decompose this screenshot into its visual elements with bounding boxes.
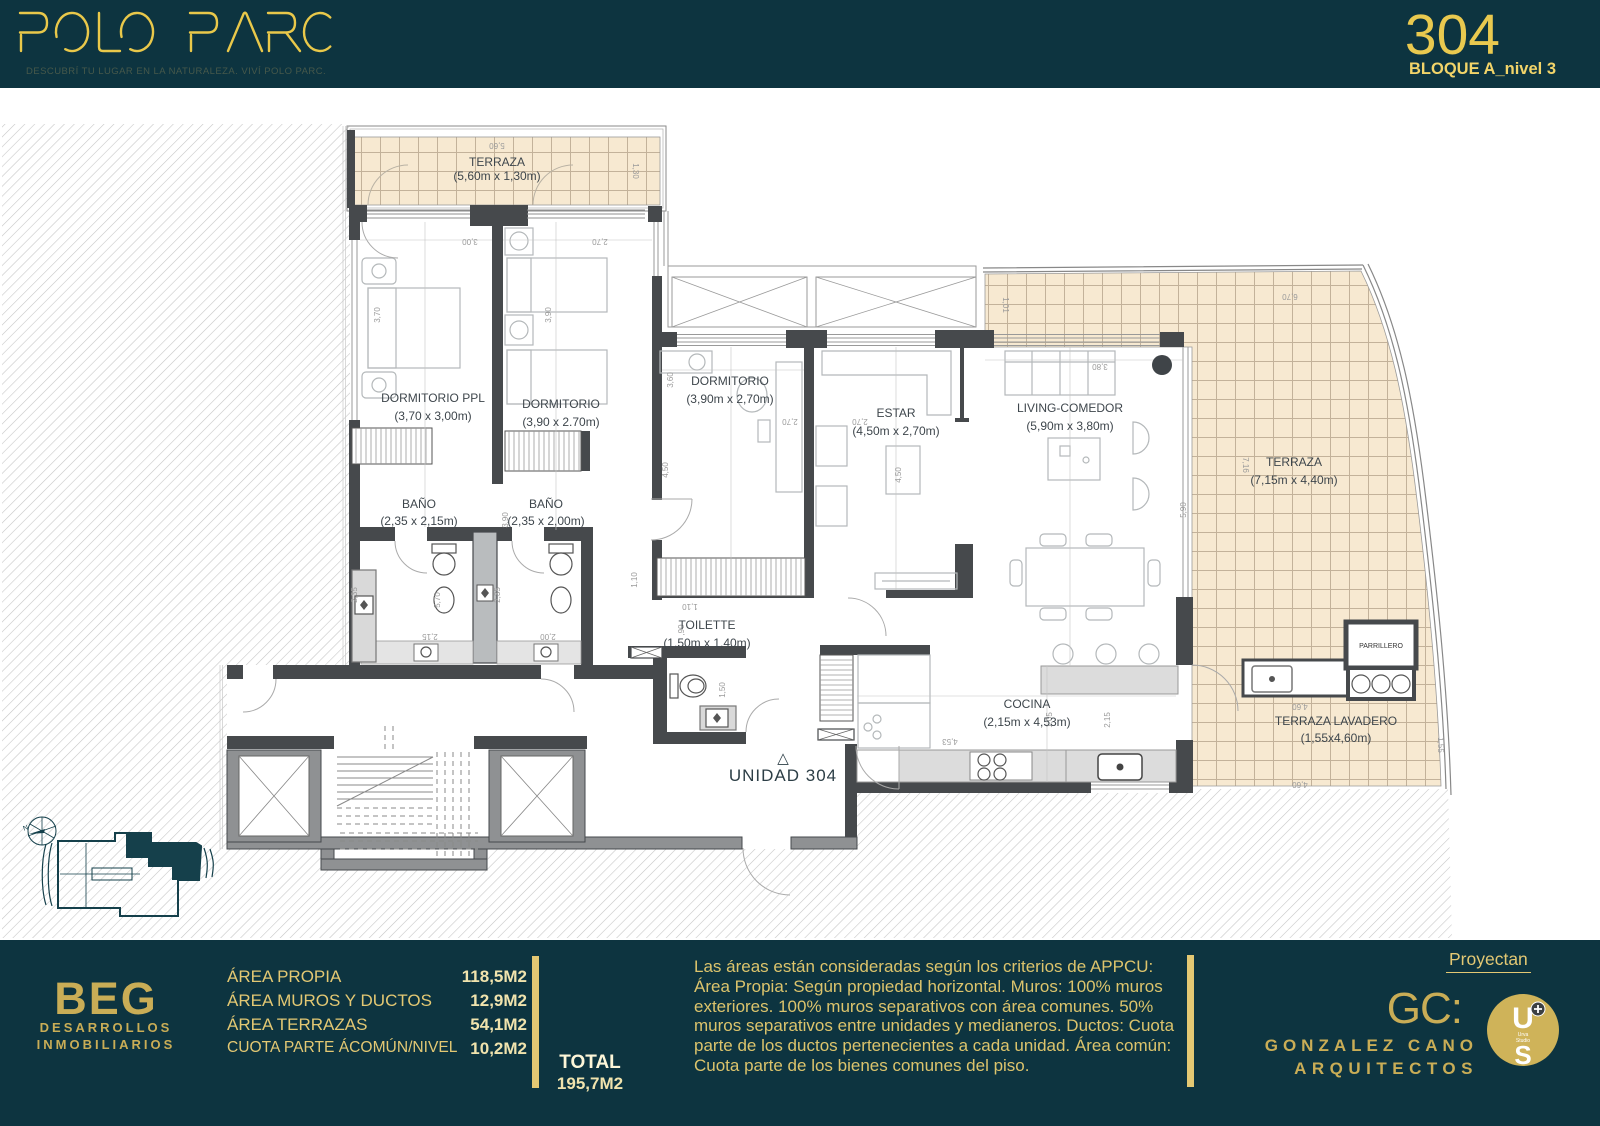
svg-text:1,01: 1,01 (1001, 297, 1010, 313)
svg-text:3,00: 3,00 (462, 237, 478, 246)
svg-text:(3,90 x 2.70m): (3,90 x 2.70m) (522, 415, 599, 429)
svg-text:DORMITORIO: DORMITORIO (691, 374, 769, 388)
svg-text:2,35: 2,35 (350, 587, 359, 603)
svg-text:U: U (1512, 1002, 1534, 1035)
svg-text:3,60: 3,60 (666, 372, 675, 388)
svg-text:(2,15m x 4,53m): (2,15m x 4,53m) (983, 715, 1070, 729)
svg-text:3,70: 3,70 (373, 307, 382, 323)
svg-text:ESTAR: ESTAR (876, 406, 915, 420)
svg-text:BAÑO: BAÑO (402, 497, 436, 511)
svg-text:2,70: 2,70 (592, 237, 608, 246)
svg-text:COCINA: COCINA (1004, 697, 1051, 711)
svg-text:(7,15m x 4,40m): (7,15m x 4,40m) (1250, 473, 1337, 487)
svg-text:(4,50m x 2,70m): (4,50m x 2,70m) (852, 424, 939, 438)
svg-text:2,35: 2,35 (493, 587, 502, 603)
svg-text:TERRAZA: TERRAZA (469, 155, 525, 169)
svg-text:DORMITORIO: DORMITORIO (522, 397, 600, 411)
svg-text:(3,90m x 2,70m): (3,90m x 2,70m) (686, 392, 773, 406)
svg-text:(2,35 x 2,15m): (2,35 x 2,15m) (380, 514, 457, 528)
svg-text:5,90: 5,90 (1179, 502, 1188, 518)
svg-text:1,10: 1,10 (682, 602, 698, 611)
svg-text:1,30: 1,30 (631, 163, 640, 179)
svg-text:TERRAZA: TERRAZA (1266, 455, 1322, 469)
svg-text:TERRAZA LAVADERO: TERRAZA LAVADERO (1275, 714, 1397, 728)
svg-text:S: S (1514, 1040, 1531, 1070)
svg-text:(1,55x4,60m): (1,55x4,60m) (1301, 731, 1372, 745)
svg-text:BAÑO: BAÑO (529, 497, 563, 511)
svg-text:4,50: 4,50 (661, 462, 670, 478)
svg-text:3,80: 3,80 (1092, 362, 1108, 371)
svg-text:5,60: 5,60 (489, 141, 505, 150)
svg-text:1,55: 1,55 (1436, 737, 1445, 753)
svg-text:2,15: 2,15 (1103, 712, 1112, 728)
svg-text:2,00: 2,00 (540, 632, 556, 641)
svg-text:6,70: 6,70 (1282, 292, 1298, 301)
svg-text:UNIDAD 304: UNIDAD 304 (729, 766, 837, 785)
svg-text:4,50: 4,50 (894, 467, 903, 483)
svg-text:(3,70 x 3,00m): (3,70 x 3,00m) (394, 409, 471, 423)
svg-text:TOILETTE: TOILETTE (678, 618, 735, 632)
svg-text:4,60: 4,60 (1292, 780, 1308, 789)
svg-text:DORMITORIO PPL: DORMITORIO PPL (381, 391, 485, 405)
svg-text:(5,90m x 3,80m): (5,90m x 3,80m) (1026, 419, 1113, 433)
svg-text:(5,60m x 1,30m): (5,60m x 1,30m) (453, 169, 540, 183)
svg-text:LIVING-COMEDOR: LIVING-COMEDOR (1017, 401, 1123, 415)
svg-text:△: △ (777, 750, 789, 767)
svg-text:(1,50m x 1,40m): (1,50m x 1,40m) (663, 636, 750, 650)
svg-text:2,70: 2,70 (782, 417, 798, 426)
svg-text:1,10: 1,10 (630, 572, 639, 588)
svg-text:(2,35 x 2,00m): (2,35 x 2,00m) (507, 514, 584, 528)
svg-text:3,90: 3,90 (544, 307, 553, 323)
svg-text:5,70: 5,70 (433, 592, 442, 608)
svg-text:PARRILLERO: PARRILLERO (1359, 643, 1403, 650)
svg-text:1,50: 1,50 (718, 682, 727, 698)
svg-text:2,15: 2,15 (422, 632, 438, 641)
svg-text:4,53: 4,53 (942, 737, 958, 746)
svg-text:4,60: 4,60 (1292, 702, 1308, 711)
svg-text:7,16: 7,16 (1241, 457, 1250, 473)
